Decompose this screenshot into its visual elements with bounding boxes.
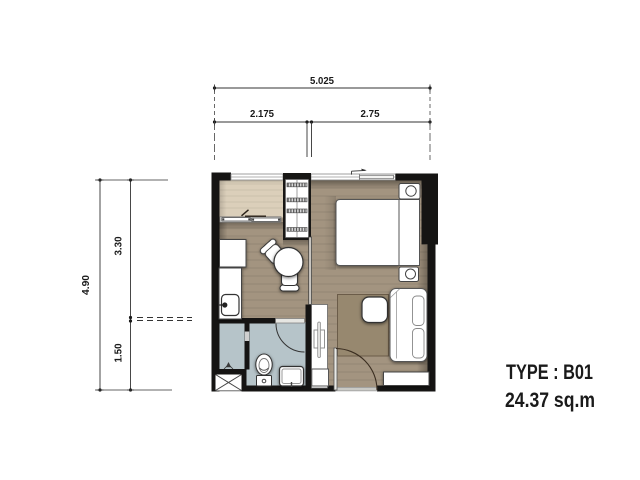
svg-text:5.025: 5.025 bbox=[310, 75, 334, 87]
svg-text:24.37 sq.m: 24.37 sq.m bbox=[505, 389, 595, 412]
svg-text:2.75: 2.75 bbox=[361, 108, 380, 120]
svg-text:TYPE : B01: TYPE : B01 bbox=[506, 361, 593, 384]
svg-text:2.175: 2.175 bbox=[250, 108, 274, 120]
svg-text:1.50: 1.50 bbox=[113, 343, 125, 362]
svg-text:4.90: 4.90 bbox=[80, 275, 92, 295]
svg-text:3.30: 3.30 bbox=[113, 236, 125, 255]
